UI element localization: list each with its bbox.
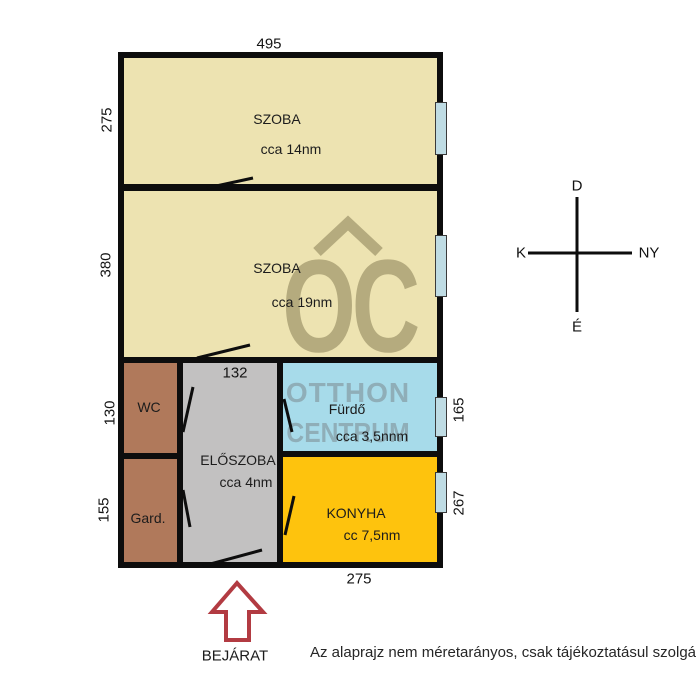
wall-furdo-konyha — [283, 451, 437, 457]
compass-icon — [528, 197, 632, 312]
wall-wc-eloszoba — [177, 363, 183, 562]
compass-label-west: NY — [639, 245, 660, 262]
compass-label-north: É — [572, 319, 582, 336]
dimension-left-szoba1: 275 — [99, 107, 116, 132]
entrance-arrow-icon — [212, 583, 263, 640]
window-konyha-icon — [435, 472, 447, 513]
label-szoba1-area: cca 14nm — [261, 141, 322, 157]
floor-plan-image: OC OTTHON CENTRUM 495 275 380 130 155 13… — [0, 0, 697, 673]
label-szoba2: SZOBA — [253, 260, 300, 276]
wall-wc-gard — [124, 453, 183, 459]
dimension-eloszoba-width: 132 — [222, 365, 247, 382]
label-wc: WC — [137, 399, 160, 415]
label-szoba2-area: cca 19nm — [272, 294, 333, 310]
window-furdo-icon — [435, 397, 447, 437]
entrance-label: BEJÁRAT — [202, 648, 268, 665]
label-eloszoba: ELŐSZOBA — [200, 452, 275, 468]
label-konyha-area: cc 7,5nm — [344, 527, 401, 543]
dimension-right-furdo: 165 — [451, 397, 468, 422]
label-furdo-area: cca 3,5nnm — [336, 428, 408, 444]
window-szoba1-icon — [435, 102, 447, 155]
dimension-bottom: 275 — [346, 571, 371, 588]
wall-between-szoba-rooms — [124, 184, 437, 191]
label-furdo: Fürdő — [329, 401, 366, 417]
dimension-left-wc: 130 — [102, 400, 119, 425]
window-szoba2-icon — [435, 235, 447, 297]
disclaimer-text: Az alaprajz nem méretarányos, csak tájék… — [310, 644, 697, 661]
label-szoba1: SZOBA — [253, 111, 300, 127]
dimension-left-szoba2: 380 — [98, 252, 115, 277]
label-gard: Gard. — [130, 510, 165, 526]
label-eloszoba-area: cca 4nm — [220, 474, 273, 490]
dimension-left-gard: 155 — [96, 497, 113, 522]
compass-label-south: D — [572, 178, 583, 195]
dimension-right-konyha: 267 — [451, 490, 468, 515]
dimension-top: 495 — [256, 36, 281, 53]
compass-label-east: K — [516, 245, 526, 262]
label-konyha: KONYHA — [326, 505, 385, 521]
wall-eloszoba-furdo-konyha — [277, 363, 283, 562]
